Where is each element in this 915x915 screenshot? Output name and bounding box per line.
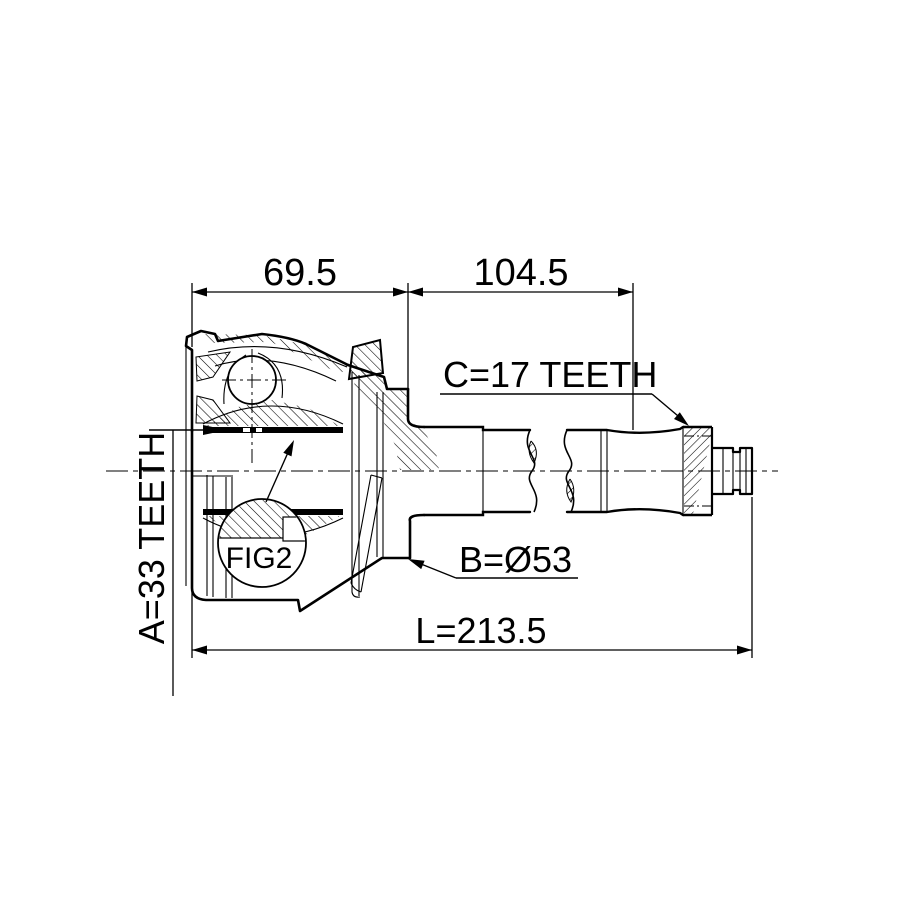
- dim-overall-length-label: L=213.5: [415, 610, 546, 651]
- cv-joint-drawing-canvas: FIG2 69.5 104.5 L=213.5 C=17 TEETH: [0, 0, 915, 915]
- dim-104-5-label: 104.5: [473, 252, 568, 294]
- drawing-page: FIG2 69.5 104.5 L=213.5 C=17 TEETH: [0, 0, 915, 915]
- boot-clamp: [349, 340, 383, 379]
- callout-c-label: C=17 TEETH: [443, 354, 657, 395]
- callout-a-label: A=33 TEETH: [131, 432, 172, 644]
- callout-b-label: B=Ø53: [459, 539, 572, 580]
- dim-69-5-label: 69.5: [263, 252, 337, 294]
- fig2-label: FIG2: [226, 542, 293, 575]
